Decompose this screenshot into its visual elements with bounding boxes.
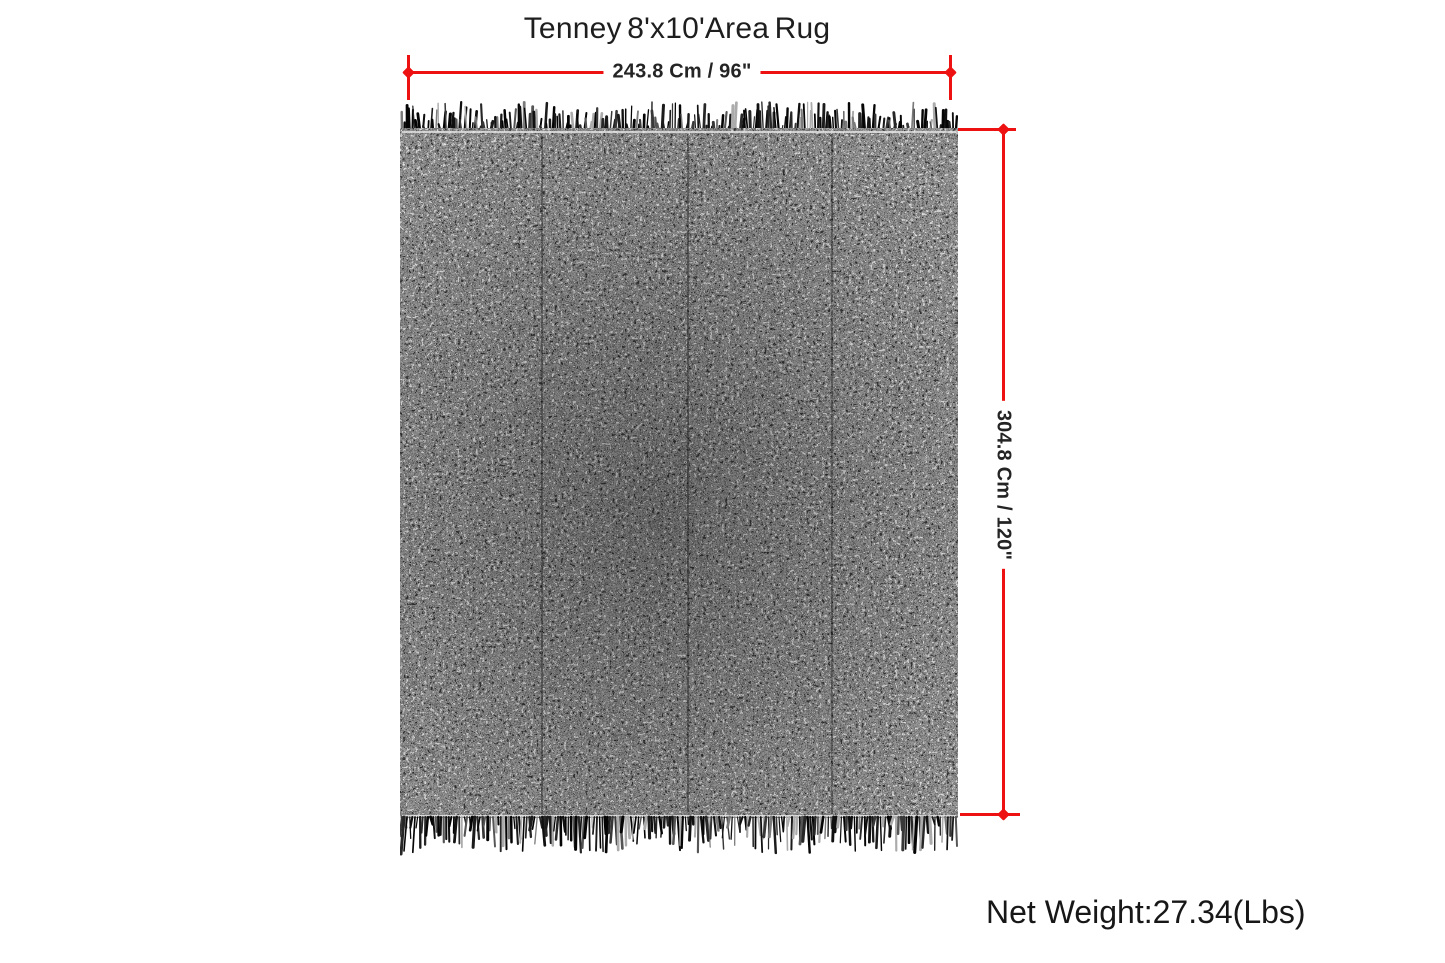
width-dimension-right-arrow-icon — [944, 66, 957, 79]
rug-image — [400, 98, 958, 862]
height-dimension-top-arrow-icon — [997, 123, 1010, 136]
rug-shading — [400, 128, 958, 818]
rug-bottom-fringe — [400, 817, 957, 854]
height-dimension-label: 304.8 Cm / 120" — [992, 401, 1015, 569]
product-title: Tenney 8'x10'Area Rug — [524, 12, 831, 46]
width-dimension-label: 243.8 Cm / 96" — [603, 61, 760, 84]
rug-top-binding — [402, 131, 956, 133]
width-dimension-left-arrow-icon — [402, 66, 415, 79]
height-dimension-bottom-arrow-icon — [997, 808, 1010, 821]
net-weight-label: Net Weight:27.34(Lbs) — [986, 894, 1306, 931]
height-dimension-bottom-tick — [960, 813, 1020, 816]
rug-dimension-diagram: Tenney 8'x10'Area Rug 243.8 Cm / 96" — [0, 0, 1445, 963]
